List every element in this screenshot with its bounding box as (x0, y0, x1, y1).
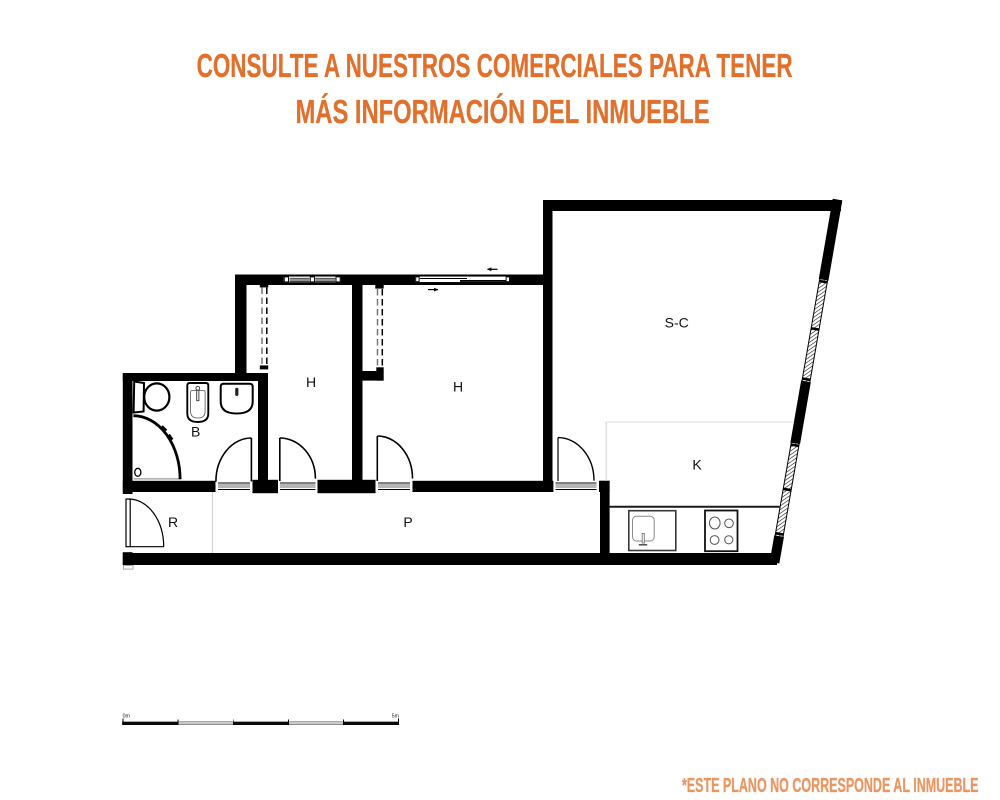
svg-text:P: P (403, 514, 412, 530)
svg-text:5m: 5m (392, 714, 399, 720)
svg-text:H: H (453, 379, 463, 395)
svg-text:R: R (168, 514, 178, 530)
svg-text:B: B (191, 424, 200, 440)
svg-text:0m: 0m (123, 714, 130, 720)
svg-text:H: H (306, 374, 316, 390)
svg-text:K: K (692, 457, 702, 473)
svg-text:S-C: S-C (665, 315, 689, 331)
